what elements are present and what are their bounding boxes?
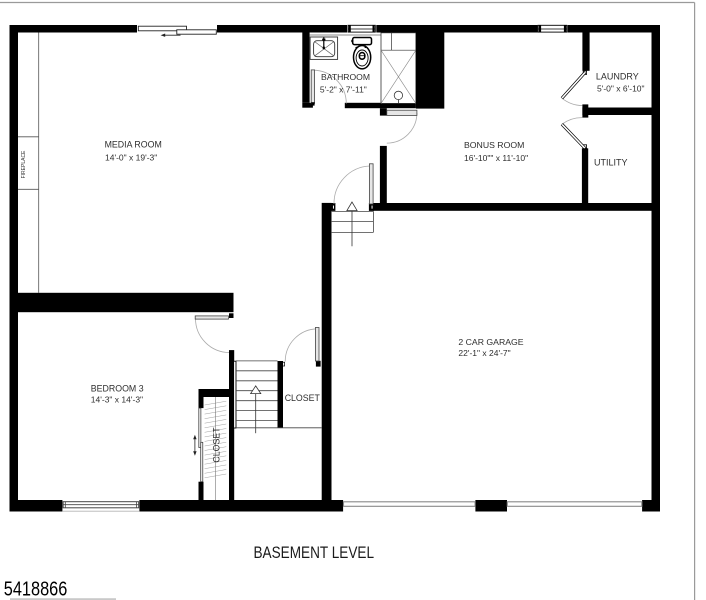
svg-text:16'-10"" x 11'-10": 16'-10"" x 11'-10" <box>464 153 528 163</box>
svg-text:BASEMENT LEVEL: BASEMENT LEVEL <box>254 543 375 562</box>
svg-text:UTILITY: UTILITY <box>594 158 628 168</box>
svg-text:MEDIA ROOM: MEDIA ROOM <box>105 140 162 150</box>
svg-text:14'-3" x 14'-3": 14'-3" x 14'-3" <box>91 395 143 405</box>
svg-text:CLOSET: CLOSET <box>285 393 321 403</box>
svg-text:14'-0" x 19'-3": 14'-0" x 19'-3" <box>105 153 157 163</box>
svg-text:5'-2" x 7'-11": 5'-2" x 7'-11" <box>320 85 367 95</box>
svg-text:22'-1" x 24'-7": 22'-1" x 24'-7" <box>458 348 510 358</box>
svg-text:5418866: 5418866 <box>4 579 68 600</box>
svg-text:LAUNDRY: LAUNDRY <box>596 72 639 82</box>
svg-text:FIREPLACE: FIREPLACE <box>21 150 27 178</box>
svg-text:5'-0" x 6'-10": 5'-0" x 6'-10" <box>597 84 645 94</box>
svg-text:BEDROOM 3: BEDROOM 3 <box>91 383 144 393</box>
svg-text:BATHROOM: BATHROOM <box>321 72 370 82</box>
svg-text:CLOSET: CLOSET <box>211 427 221 463</box>
svg-text:2 CAR GARAGE: 2 CAR GARAGE <box>458 337 523 347</box>
svg-text:BONUS ROOM: BONUS ROOM <box>464 140 524 150</box>
